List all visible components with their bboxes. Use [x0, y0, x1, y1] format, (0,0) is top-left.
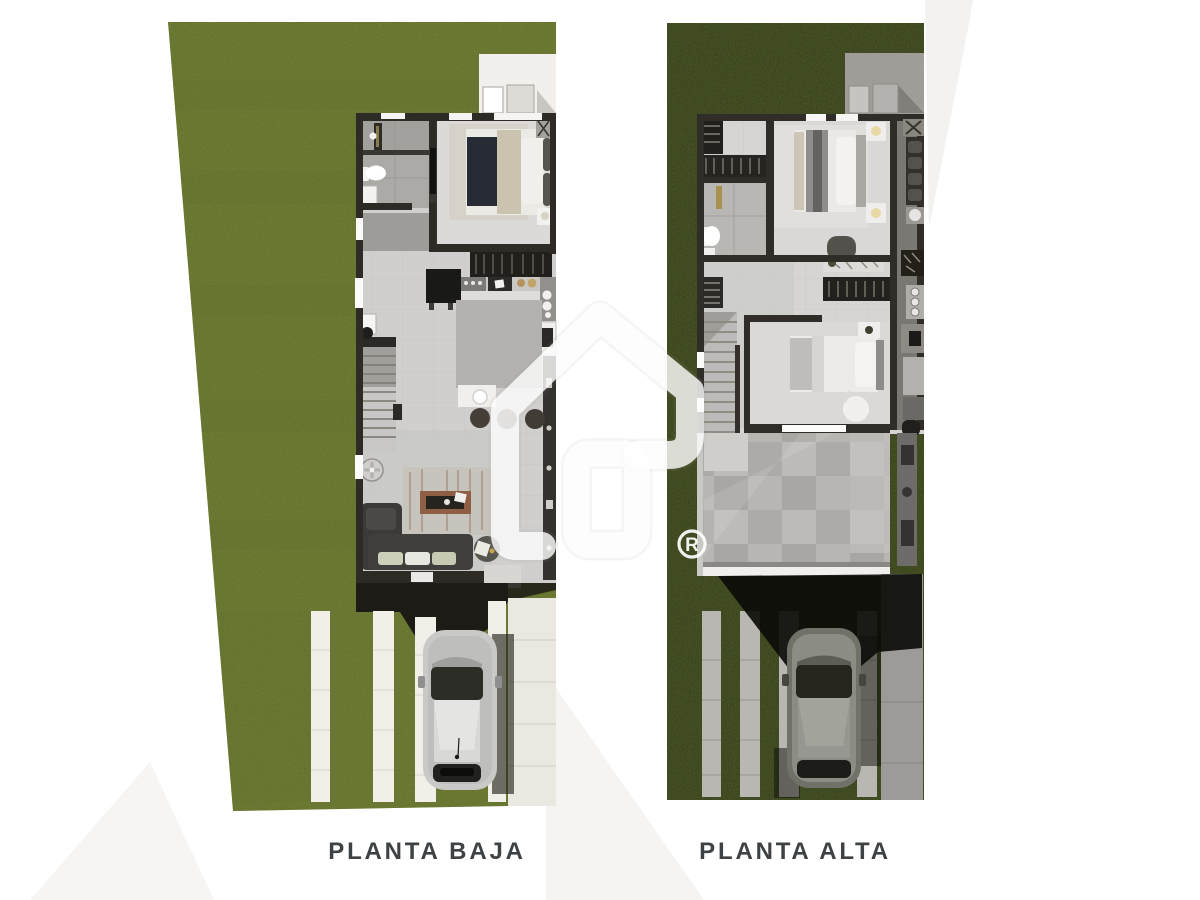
- svg-text:PLANTA ALTA: PLANTA ALTA: [699, 838, 891, 865]
- svg-text:R: R: [685, 535, 699, 556]
- svg-text:PLANTA BAJA: PLANTA BAJA: [328, 838, 525, 865]
